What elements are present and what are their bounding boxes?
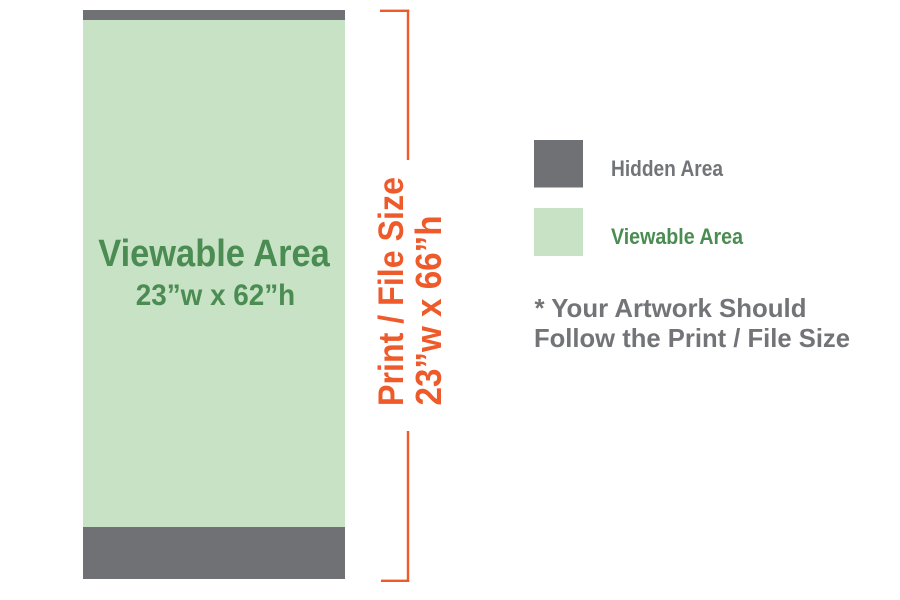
svg-text:Follow the Print / File Size: Follow the Print / File Size (534, 323, 850, 353)
svg-text:23”w x 66”h: 23”w x 66”h (408, 216, 449, 406)
svg-text:Hidden Area: Hidden Area (611, 156, 724, 181)
svg-text:Viewable Area: Viewable Area (611, 224, 744, 249)
svg-text:Viewable Area: Viewable Area (98, 233, 330, 275)
svg-text:Print / File Size: Print / File Size (371, 177, 411, 406)
svg-text:* Your Artwork Should: * Your Artwork Should (535, 293, 807, 323)
svg-text:23”w x 62”h: 23”w x 62”h (136, 279, 295, 312)
